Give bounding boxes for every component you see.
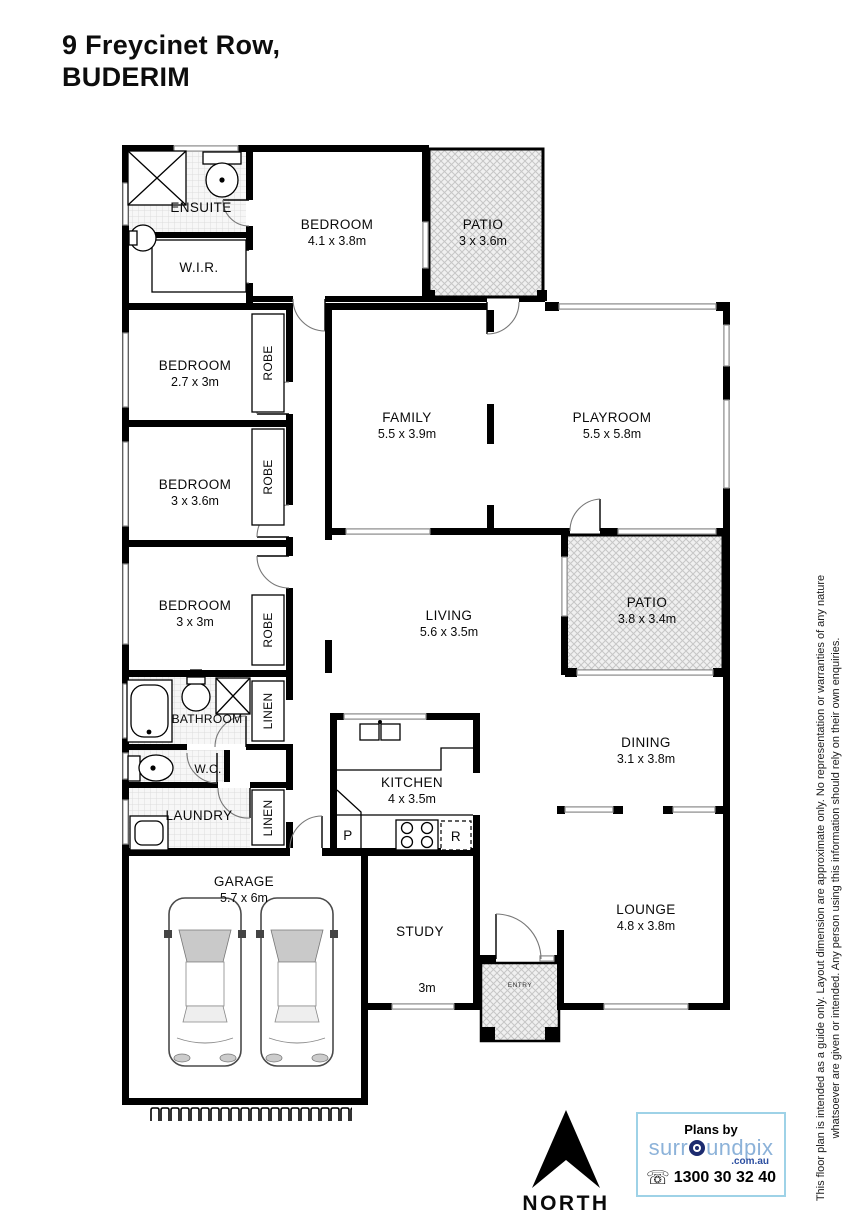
wc-toilet-icon bbox=[128, 756, 140, 781]
label-family: FAMILY bbox=[382, 410, 431, 425]
north-arrow-icon bbox=[532, 1110, 600, 1188]
label-laundry: LAUNDRY bbox=[165, 808, 232, 823]
label-robe3: ROBE bbox=[261, 612, 275, 647]
label-dining: DINING bbox=[621, 735, 671, 750]
label-bedroom2: BEDROOM bbox=[159, 358, 232, 373]
dims-living: 5.6 x 3.5m bbox=[420, 625, 478, 639]
brand-domain: .com.au bbox=[643, 1156, 769, 1167]
address-line1: 9 Freycinet Row, bbox=[62, 30, 280, 62]
label-bedroom4: BEDROOM bbox=[159, 598, 232, 613]
label-linen2: LINEN bbox=[261, 800, 275, 837]
north-compass: NORTH bbox=[522, 1110, 609, 1215]
label-kitchen: KITCHEN bbox=[381, 775, 443, 790]
label-lounge: LOUNGE bbox=[616, 902, 675, 917]
label-robe1: ROBE bbox=[261, 345, 275, 380]
label-linen1: LINEN bbox=[261, 693, 275, 730]
label-ensuite: ENSUITE bbox=[170, 200, 231, 215]
floorplan-drawing: ENSUITE W.I.R. BEDROOM 4.1 x 3.8m PATIO … bbox=[0, 0, 864, 1221]
dims-family: 5.5 x 3.9m bbox=[378, 427, 436, 441]
dims-dining: 3.1 x 3.8m bbox=[617, 752, 675, 766]
telephone-icon: ☏ bbox=[646, 1169, 670, 1188]
floorplan-page: 9 Freycinet Row, BUDERIM bbox=[0, 0, 864, 1221]
dims-bedroom2: 2.7 x 3m bbox=[171, 375, 219, 389]
garage-contents bbox=[150, 898, 352, 1121]
label-living: LIVING bbox=[426, 608, 473, 623]
sink-icon bbox=[360, 724, 379, 740]
label-patio2: PATIO bbox=[627, 595, 668, 610]
phone-number: 1300 30 32 40 bbox=[674, 1169, 776, 1187]
label-patio1: PATIO bbox=[463, 217, 504, 232]
car-icon bbox=[256, 898, 338, 1066]
label-entry: ENTRY bbox=[508, 982, 533, 989]
disclaimer-line1: This floor plan is intended as a guide o… bbox=[814, 564, 829, 1212]
dims-kitchen: 4 x 3.5m bbox=[388, 792, 436, 806]
kitchen-bench bbox=[337, 748, 473, 770]
dims-patio1: 3 x 3.6m bbox=[459, 234, 507, 248]
dims-bedroom1: 4.1 x 3.8m bbox=[308, 234, 366, 248]
disclaimer-line2: whatsoever are given or intended. Any pe… bbox=[829, 564, 844, 1212]
label-fridge: R bbox=[451, 829, 461, 844]
label-wir: W.I.R. bbox=[179, 260, 218, 275]
dims-patio2: 3.8 x 3.4m bbox=[618, 612, 676, 626]
surroundpix-lens-icon bbox=[689, 1140, 705, 1156]
dims-bedroom3: 3 x 3.6m bbox=[171, 494, 219, 508]
label-pantry: P bbox=[343, 828, 352, 843]
basin-icon bbox=[182, 683, 210, 711]
toilet-icon bbox=[203, 152, 241, 164]
label-garage: GARAGE bbox=[214, 874, 274, 889]
label-bathroom: BATHROOM bbox=[172, 712, 243, 726]
label-wc: W.C. bbox=[194, 762, 221, 776]
north-label: NORTH bbox=[522, 1192, 609, 1215]
label-bedroom3: BEDROOM bbox=[159, 477, 232, 492]
property-address: 9 Freycinet Row, BUDERIM bbox=[62, 30, 280, 94]
label-bedroom1: BEDROOM bbox=[301, 217, 374, 232]
dims-lounge: 4.8 x 3.8m bbox=[617, 919, 675, 933]
label-robe2: ROBE bbox=[261, 459, 275, 494]
garage-door-icon bbox=[150, 1104, 352, 1121]
dims-playroom: 5.5 x 5.8m bbox=[583, 427, 641, 441]
address-line2: BUDERIM bbox=[62, 62, 280, 94]
surroundpix-branding-box: Plans by surr undpix .com.au ☏ 1300 30 3… bbox=[636, 1112, 786, 1197]
disclaimer-text: This floor plan is intended as a guide o… bbox=[814, 564, 843, 1212]
car-icon bbox=[164, 898, 246, 1066]
dims-garage: 5.7 x 6m bbox=[220, 891, 268, 905]
phone-row: ☏ 1300 30 32 40 bbox=[643, 1169, 779, 1188]
label-study: STUDY bbox=[396, 924, 444, 939]
dims-study-window: 3m bbox=[418, 981, 435, 995]
dims-bedroom4: 3 x 3m bbox=[176, 615, 214, 629]
label-playroom: PLAYROOM bbox=[573, 410, 652, 425]
